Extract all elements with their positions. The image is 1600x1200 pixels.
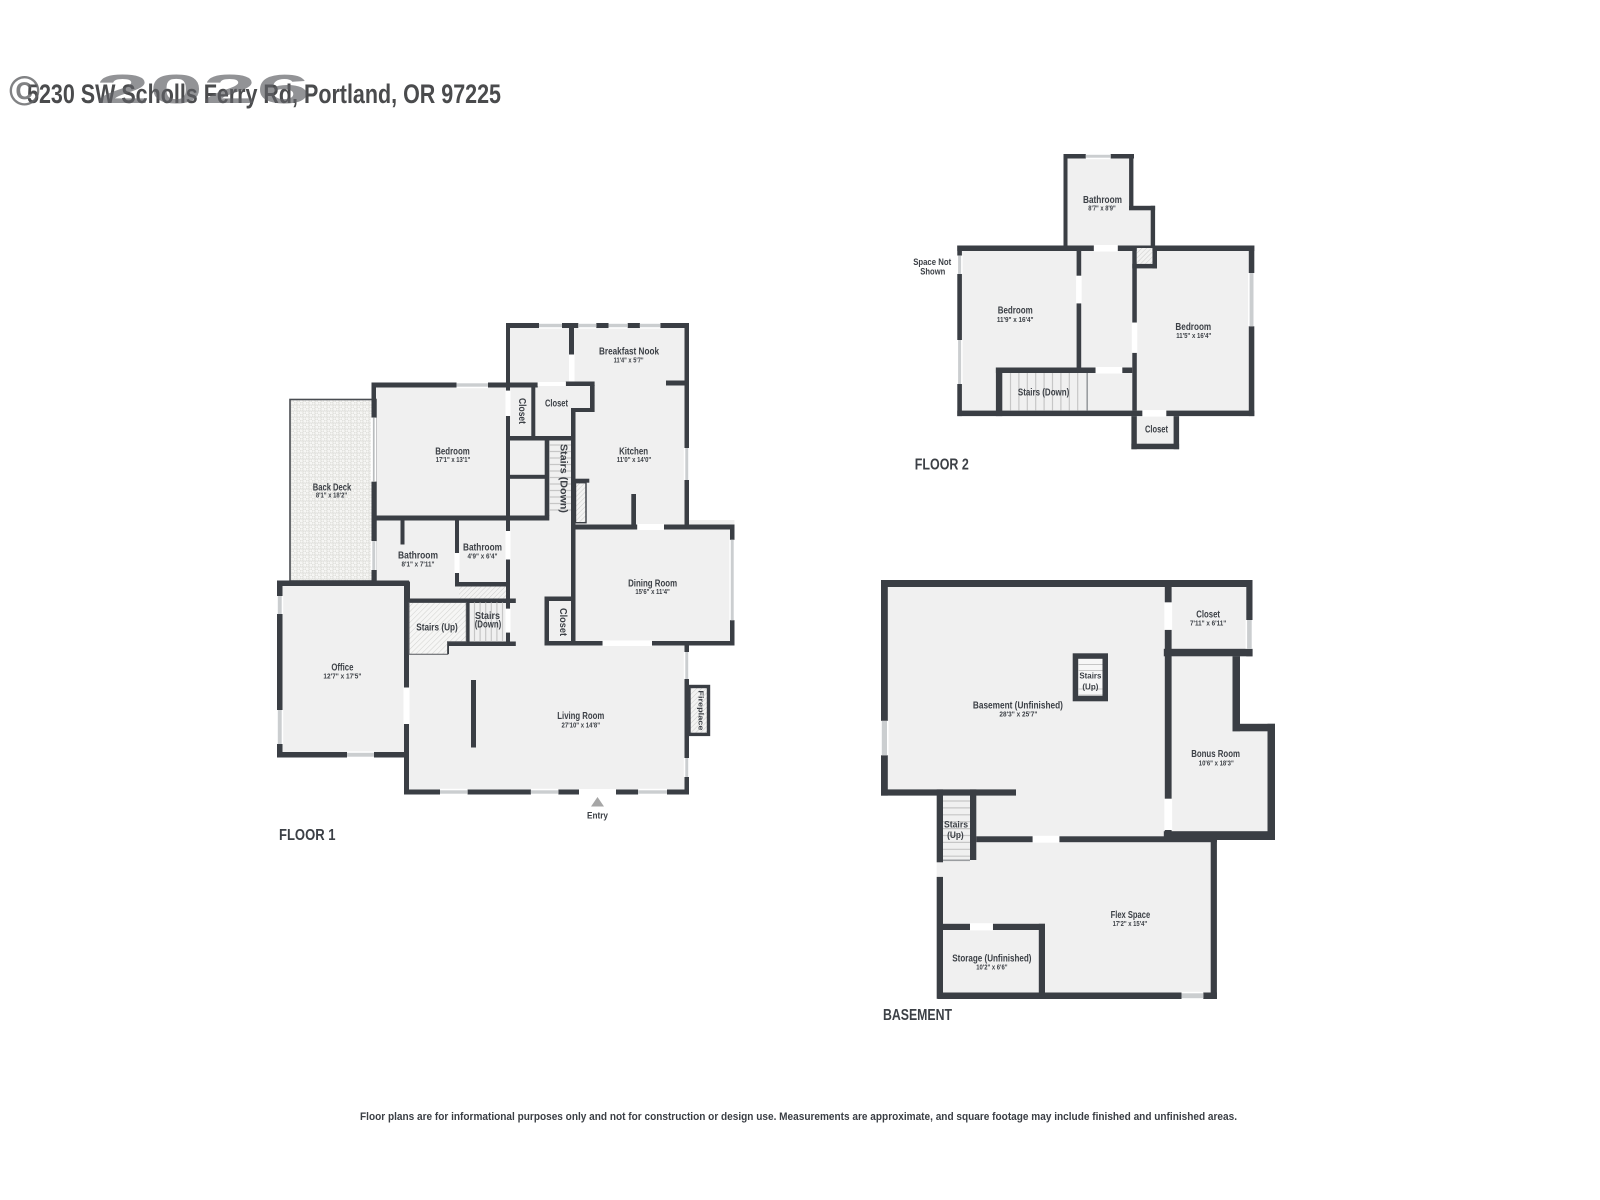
svg-text:12'7" x 17'5": 12'7" x 17'5": [323, 672, 361, 681]
svg-text:(Up): (Up): [1082, 682, 1098, 692]
svg-text:Floor plans are for informatio: Floor plans are for informational purpos…: [360, 1111, 1237, 1123]
svg-text:Entry: Entry: [587, 811, 609, 822]
svg-text:11'5" x 16'4": 11'5" x 16'4": [1176, 331, 1211, 340]
svg-text:Stairs: Stairs: [1079, 671, 1101, 681]
svg-text:Stairs (Down): Stairs (Down): [1018, 387, 1069, 399]
svg-text:2026: 2026: [96, 66, 310, 112]
svg-text:7'11" x 6'11": 7'11" x 6'11": [1190, 619, 1227, 628]
svg-text:10'2" x 6'6": 10'2" x 6'6": [976, 962, 1008, 971]
svg-text:4'9" x 6'4": 4'9" x 6'4": [468, 552, 498, 561]
svg-text:8'1" x 18'2": 8'1" x 18'2": [316, 491, 348, 500]
svg-text:27'10" x 14'8": 27'10" x 14'8": [562, 721, 601, 730]
svg-text:Shown: Shown: [920, 267, 945, 278]
svg-text:(Down): (Down): [475, 619, 502, 631]
svg-text:Stairs: Stairs: [944, 820, 968, 831]
svg-text:17'2" x 15'4": 17'2" x 15'4": [1113, 919, 1148, 928]
svg-text:©: ©: [9, 67, 40, 114]
svg-text:Closet: Closet: [557, 608, 569, 636]
svg-text:FLOOR 2: FLOOR 2: [915, 457, 969, 474]
svg-text:17'1" x 13'1": 17'1" x 13'1": [436, 455, 471, 464]
svg-text:11'9" x 16'4": 11'9" x 16'4": [997, 315, 1034, 324]
svg-text:11'0" x 14'0": 11'0" x 14'0": [617, 455, 652, 464]
svg-text:Stairs (Down): Stairs (Down): [557, 444, 569, 513]
svg-text:(Up): (Up): [947, 830, 964, 841]
svg-text:Fireplace: Fireplace: [696, 690, 705, 730]
svg-text:8'1" x 7'11": 8'1" x 7'11": [402, 560, 435, 569]
svg-text:10'6" x 18'3": 10'6" x 18'3": [1199, 759, 1234, 768]
svg-text:Closet: Closet: [516, 398, 528, 424]
svg-text:8'7" x 8'9": 8'7" x 8'9": [1088, 204, 1116, 213]
svg-text:Stairs (Up): Stairs (Up): [416, 622, 458, 634]
svg-text:FLOOR 1: FLOOR 1: [279, 827, 336, 844]
svg-text:BASEMENT: BASEMENT: [883, 1007, 952, 1024]
svg-text:15'6" x 11'4": 15'6" x 11'4": [635, 587, 670, 596]
svg-text:Closet: Closet: [1145, 424, 1168, 436]
svg-text:11'4" x 5'7": 11'4" x 5'7": [614, 356, 644, 365]
svg-text:28'3" x 25'7": 28'3" x 25'7": [999, 710, 1037, 719]
svg-text:Closet: Closet: [545, 398, 568, 410]
